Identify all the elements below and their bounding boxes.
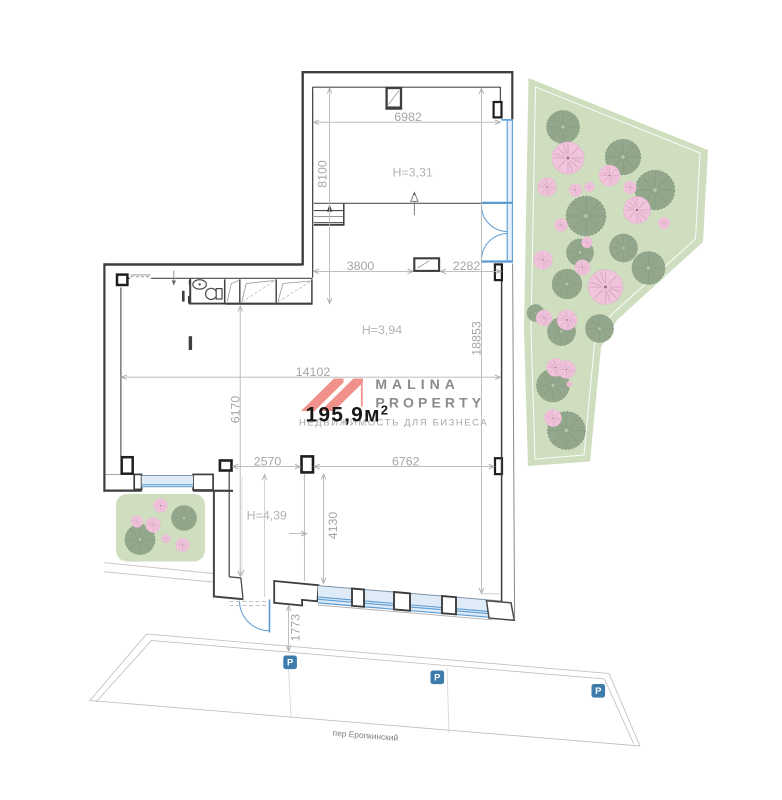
svg-text:2570: 2570	[254, 454, 282, 468]
svg-text:P: P	[287, 656, 293, 667]
svg-text:P: P	[434, 671, 440, 682]
svg-text:H=3,31: H=3,31	[392, 165, 432, 179]
svg-text:2282: 2282	[453, 259, 481, 273]
svg-text:14102: 14102	[296, 365, 331, 379]
svg-text:4130: 4130	[326, 512, 340, 540]
svg-text:195,9м2: 195,9м2	[306, 402, 390, 426]
svg-text:18853: 18853	[470, 321, 484, 356]
svg-text:PROPERTY: PROPERTY	[375, 394, 485, 410]
svg-text:3800: 3800	[347, 259, 375, 273]
svg-text:6762: 6762	[392, 454, 420, 468]
svg-text:P: P	[595, 685, 601, 696]
svg-text:H=4,39: H=4,39	[247, 509, 287, 523]
svg-text:8100: 8100	[315, 160, 329, 188]
svg-text:1773: 1773	[289, 614, 303, 642]
svg-text:пер Еропкинский: пер Еропкинский	[332, 728, 399, 743]
svg-text:6170: 6170	[228, 396, 242, 424]
svg-text:6982: 6982	[394, 110, 422, 124]
svg-text:H=3,94: H=3,94	[362, 323, 402, 337]
svg-text:MALINA: MALINA	[375, 376, 459, 392]
